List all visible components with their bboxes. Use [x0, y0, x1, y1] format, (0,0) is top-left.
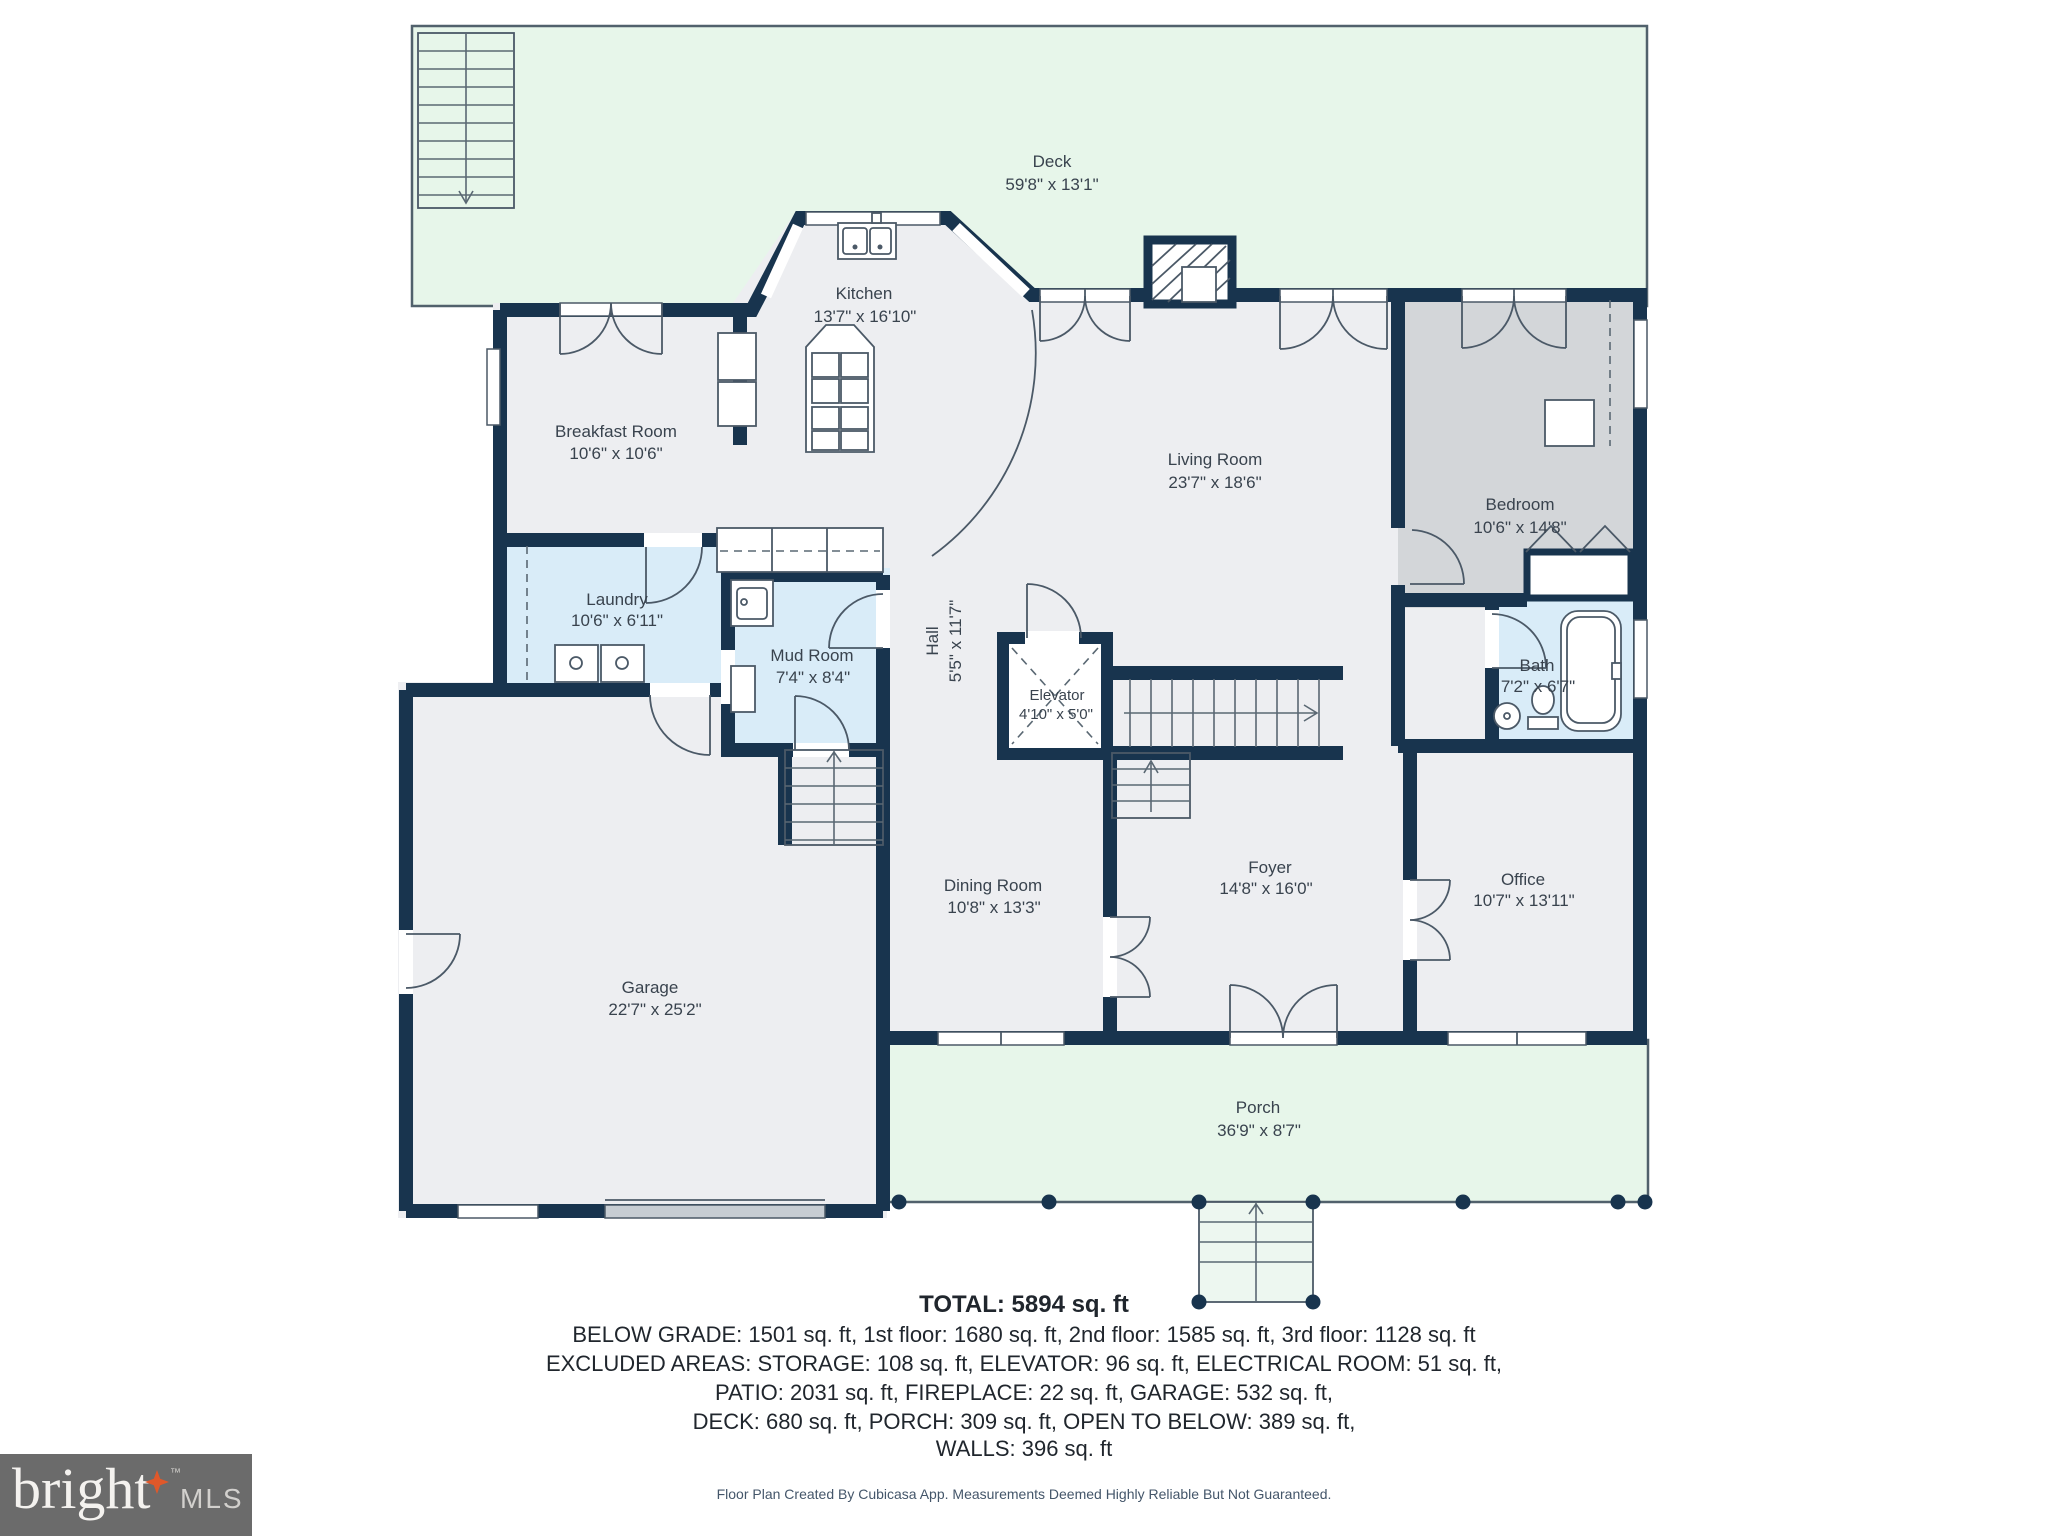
area-summary: TOTAL: 5894 sq. ft BELOW GRADE: 1501 sq.…	[546, 1291, 1502, 1502]
room-label-bedroom: Bedroom	[1486, 495, 1555, 514]
room-label-bath: Bath	[1520, 656, 1555, 675]
room-label-porch: Porch	[1236, 1098, 1280, 1117]
room-dims-laundry: 10'6" x 6'11"	[571, 611, 663, 630]
room-dims-breakfast-room: 10'6" x 10'6"	[569, 444, 662, 463]
room-dims-kitchen: 13'7" x 16'10"	[814, 307, 917, 326]
fireplace-chimney-icon	[1148, 240, 1232, 304]
room-dims-deck: 59'8" x 13'1"	[1005, 175, 1098, 194]
room-label-living-room: Living Room	[1168, 450, 1263, 469]
summary-line-1: BELOW GRADE: 1501 sq. ft, 1st floor: 168…	[572, 1322, 1475, 1347]
footer-disclaimer: Floor Plan Created By Cubicasa App. Meas…	[717, 1486, 1332, 1502]
deck-area	[412, 26, 1647, 306]
room-label-foyer: Foyer	[1248, 858, 1292, 877]
room-label-garage: Garage	[622, 978, 679, 997]
room-label-elevator: Elevator	[1029, 687, 1084, 704]
room-label-deck: Deck	[1033, 152, 1072, 171]
room-dims-bedroom: 10'6" x 14'8"	[1473, 518, 1566, 537]
logo-suffix-text: MLS	[180, 1483, 244, 1514]
bathtub-icon	[1561, 611, 1621, 731]
room-dims-foyer: 14'8" x 16'0"	[1219, 879, 1312, 898]
room-label-office: Office	[1501, 870, 1545, 889]
room-label-hall: Hall	[923, 626, 942, 655]
room-dims-hall: 5'5" x 11'7"	[946, 600, 965, 683]
kitchen-island-icon	[806, 325, 874, 452]
summary-line-4: DECK: 680 sq. ft, PORCH: 309 sq. ft, OPE…	[693, 1409, 1356, 1434]
room-label-kitchen: Kitchen	[836, 284, 893, 303]
room-dims-mud-room: 7'4" x 8'4"	[776, 668, 850, 687]
logo-brand-text: bright	[12, 1456, 151, 1521]
bath-sink-icon	[1494, 703, 1520, 729]
room-dims-dining-room: 10'8" x 13'3"	[947, 898, 1040, 917]
room-label-laundry: Laundry	[586, 590, 648, 609]
room-label-breakfast-room: Breakfast Room	[555, 422, 677, 441]
room-dims-garage: 22'7" x 25'2"	[608, 1000, 701, 1019]
bedroom-closet	[1527, 552, 1631, 598]
room-dims-living-room: 23'7" x 18'6"	[1168, 473, 1261, 492]
room-dims-porch: 36'9" x 8'7"	[1217, 1121, 1301, 1140]
summary-line-3: PATIO: 2031 sq. ft, FIREPLACE: 22 sq. ft…	[715, 1380, 1333, 1405]
logo-trademark: ™	[170, 1467, 181, 1479]
room-label-mud-room: Mud Room	[770, 646, 853, 665]
room-label-dining-room: Dining Room	[944, 876, 1042, 895]
porch-stairs-icon	[1192, 1195, 1321, 1310]
summary-total: TOTAL: 5894 sq. ft	[919, 1291, 1129, 1318]
room-dims-bath: 7'2" x 6'7"	[1501, 677, 1575, 696]
brightmls-logo: bright ™ MLS	[0, 1454, 252, 1536]
floor-plan-page: Deck 59'8" x 13'1" Kitchen 13'7" x 16'10…	[0, 0, 2048, 1536]
summary-line-2: EXCLUDED AREAS: STORAGE: 108 sq. ft, ELE…	[546, 1351, 1502, 1376]
room-dims-office: 10'7" x 13'11"	[1473, 891, 1574, 910]
summary-line-5: WALLS: 396 sq. ft	[936, 1436, 1113, 1461]
garage-floor	[398, 682, 887, 1218]
room-dims-elevator: 4'10" x 5'0"	[1019, 706, 1093, 723]
floor-plan-drawing: Deck 59'8" x 13'1" Kitchen 13'7" x 16'10…	[0, 0, 2048, 1536]
